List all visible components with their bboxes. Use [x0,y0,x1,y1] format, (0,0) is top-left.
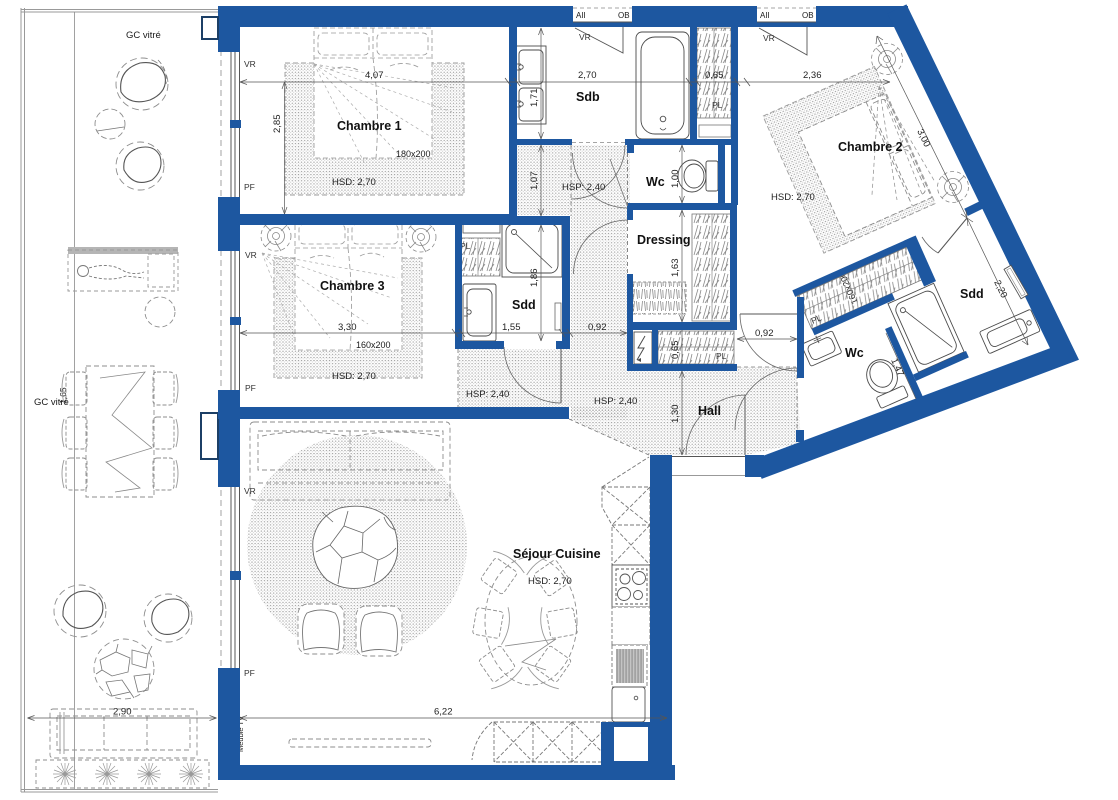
svg-text:PF: PF [244,182,255,192]
svg-text:Chambre 2: Chambre 2 [838,140,903,154]
svg-text:0,65: 0,65 [705,70,724,81]
svg-text:Sdb: Sdb [576,90,600,104]
svg-text:PF: PF [244,668,255,678]
svg-text:Wc: Wc [646,175,665,189]
svg-text:Chambre 3: Chambre 3 [320,279,385,293]
svg-text:VR: VR [244,59,256,69]
svg-text:2,36: 2,36 [803,70,822,81]
svg-text:HSD: 2,70: HSD: 2,70 [332,371,376,382]
svg-text:AII: AII [576,11,586,20]
svg-text:160x200: 160x200 [356,340,391,350]
svg-text:OB: OB [618,11,630,20]
svg-text:VR: VR [579,32,591,42]
svg-text:1,86: 1,86 [529,269,540,288]
svg-text:6,22: 6,22 [434,707,453,718]
svg-text:1,30: 1,30 [670,405,681,424]
svg-text:PL: PL [712,100,723,110]
svg-text:2,70: 2,70 [578,70,597,81]
svg-text:HSD: 2,70: HSD: 2,70 [332,177,376,188]
svg-text:OB: OB [802,11,814,20]
svg-text:3,30: 3,30 [338,322,357,333]
svg-text:1,00: 1,00 [670,170,681,189]
svg-text:HSP: 2,40: HSP: 2,40 [562,182,605,193]
svg-text:1,07: 1,07 [529,172,540,191]
svg-text:HSP: 2,40: HSP: 2,40 [466,389,509,400]
svg-text:1,63: 1,63 [670,259,681,278]
svg-text:Dressing: Dressing [637,233,691,247]
svg-text:Hall: Hall [698,404,721,418]
svg-text:Sdd: Sdd [960,287,984,301]
svg-text:0,92: 0,92 [588,322,607,333]
svg-text:VR: VR [245,250,257,260]
svg-text:4,07: 4,07 [365,70,384,81]
svg-text:Chambre 1: Chambre 1 [337,119,402,133]
svg-text:Sdd: Sdd [512,298,536,312]
svg-text:Séjour Cuisine: Séjour Cuisine [513,547,601,561]
svg-text:1,55: 1,55 [502,322,521,333]
svg-text:2,90: 2,90 [113,707,132,718]
svg-text:HSD: 2,70: HSD: 2,70 [771,192,815,203]
svg-text:0,92: 0,92 [755,328,774,339]
svg-text:VR: VR [244,486,256,496]
svg-text:0,65: 0,65 [670,341,681,360]
svg-text:VR: VR [763,33,775,43]
svg-text:PL: PL [716,351,727,361]
svg-text:2,85: 2,85 [272,115,283,134]
svg-text:Wc: Wc [845,346,864,360]
svg-text:1,65: 1,65 [58,387,68,404]
svg-text:AII: AII [760,11,770,20]
svg-text:GC vitré: GC vitré [126,30,161,41]
svg-text:HSD: 2,70: HSD: 2,70 [528,576,572,587]
svg-text:HSP: 2,40: HSP: 2,40 [594,396,637,407]
svg-text:PF: PF [245,383,256,393]
svg-text:1,71: 1,71 [529,89,540,108]
